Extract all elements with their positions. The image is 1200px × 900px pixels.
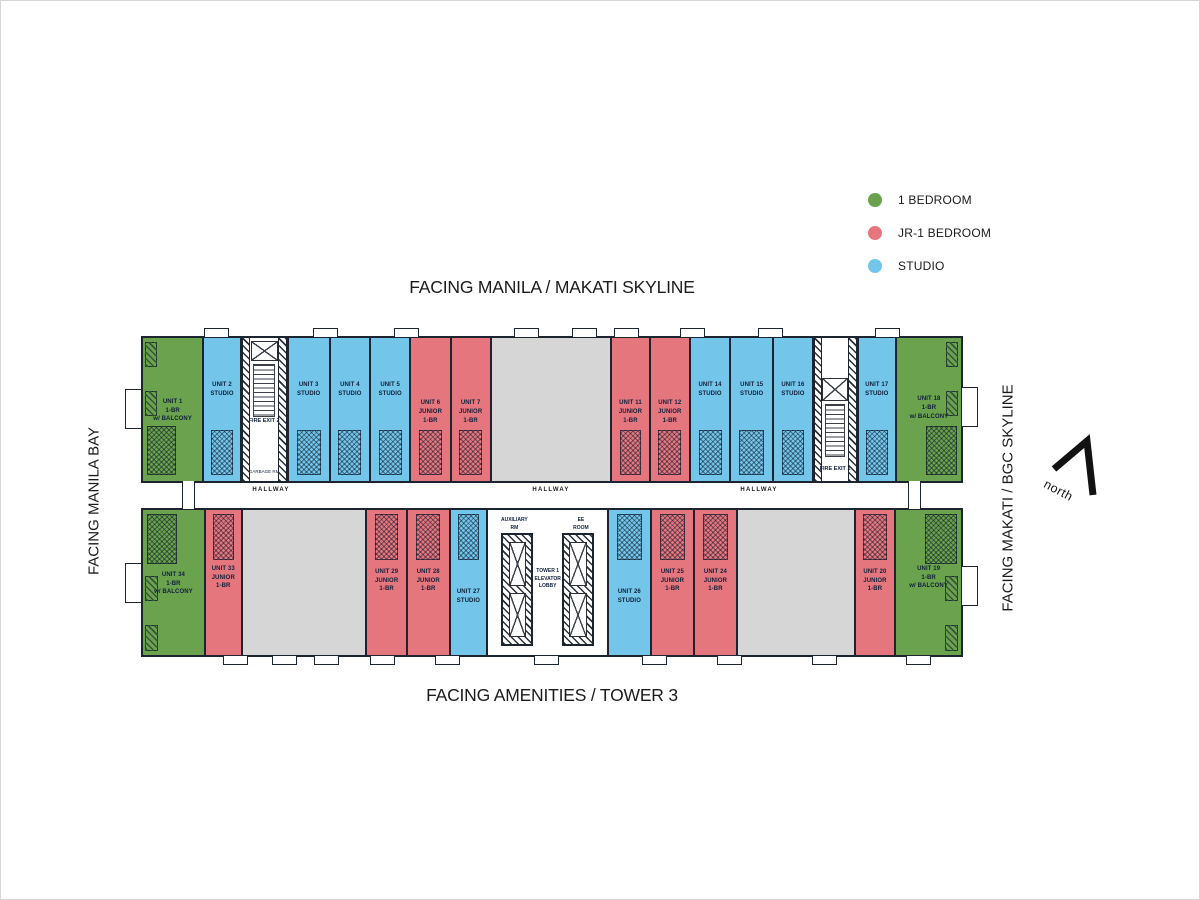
- stair-shaft-wall: [278, 338, 287, 481]
- parapet-ledge: [614, 328, 639, 337]
- fire-exit-2-label: FIRE EXIT 2: [242, 418, 287, 424]
- unit-11-label: UNIT 11JUNIOR1-BR: [612, 399, 648, 425]
- garbage-room-label: GARBAGE RM: [242, 469, 287, 474]
- parapet-ledge: [204, 328, 229, 337]
- parapet-ledge: [223, 656, 248, 665]
- unit-16: UNIT 16STUDIO: [772, 338, 811, 481]
- ee-room-label: EEROOM: [556, 517, 606, 532]
- legend-item-jr-1-bedroom: JR-1 BEDROOM: [868, 226, 991, 240]
- hallway-label-left: HALLWAY: [252, 487, 289, 493]
- unit-28-label: UNIT 28JUNIOR1-BR: [408, 568, 449, 594]
- fire-exit-2: FIRE EXIT 2GARBAGE RM: [240, 338, 287, 481]
- legend-item-1-bedroom: 1 BEDROOM: [868, 193, 991, 207]
- top-wing: UNIT 11-BRw/ BALCONYUNIT 2STUDIOFIRE EXI…: [141, 336, 963, 483]
- studio-color-dot: [868, 259, 882, 273]
- bathroom-hatch: [620, 430, 642, 475]
- legend-label-studio: STUDIO: [898, 259, 945, 273]
- stairs: [825, 404, 846, 457]
- unit-19: UNIT 191-BRw/ BALCONY: [894, 510, 961, 655]
- bathroom-hatch: [297, 430, 321, 475]
- bathroom-hatch: [617, 514, 641, 560]
- parapet-ledge: [514, 328, 539, 337]
- parapet-ledge: [680, 328, 705, 337]
- bathroom-hatch: [213, 514, 234, 560]
- unit-25: UNIT 25JUNIOR1-BR: [650, 510, 694, 655]
- unit-26-label: UNIT 26STUDIO: [609, 588, 650, 605]
- bathroom-hatch: [782, 430, 804, 475]
- parapet-ledge: [875, 328, 900, 337]
- bathroom-hatch: [863, 514, 886, 560]
- unit-27: UNIT 27STUDIO: [449, 510, 487, 655]
- parapet-ledge: [717, 656, 742, 665]
- elevator-car: [509, 542, 526, 586]
- unit-27-label: UNIT 27STUDIO: [451, 588, 487, 605]
- bathroom-hatch: [458, 514, 479, 560]
- crossed-landing-box: [251, 341, 278, 362]
- stairs: [253, 364, 275, 417]
- unit-25-label: UNIT 25JUNIOR1-BR: [652, 568, 694, 594]
- bathroom-hatch: [147, 426, 176, 475]
- unit-24: UNIT 24JUNIOR1-BR: [693, 510, 736, 655]
- unit-1: UNIT 11-BRw/ BALCONY: [143, 338, 202, 481]
- legend-label-1-bedroom: 1 BEDROOM: [898, 193, 972, 207]
- bathroom-hatch: [338, 430, 361, 475]
- gray-block-bottom-right: [736, 510, 854, 655]
- jr-1-bedroom-color-dot: [868, 226, 882, 240]
- elevator-car: [569, 593, 586, 637]
- parapet-ledge: [758, 328, 783, 337]
- facing-west-label: FACING MANILA BAY: [86, 427, 103, 575]
- unit-17: UNIT 17STUDIO: [857, 338, 895, 481]
- stair-shaft-wall: [848, 338, 856, 481]
- fire-exit-1: FIRE EXIT 1: [812, 338, 857, 481]
- parapet-ledge: [534, 656, 559, 665]
- unit-16-label: UNIT 16STUDIO: [774, 381, 811, 398]
- parapet-ledge: [313, 328, 338, 337]
- unit-20-label: UNIT 20JUNIOR1-BR: [856, 568, 895, 594]
- unit-7: UNIT 7JUNIOR1-BR: [450, 338, 490, 481]
- elevator-car: [569, 542, 586, 586]
- unit-3-label: UNIT 3STUDIO: [289, 381, 329, 398]
- fire-exit-1-label: FIRE EXIT 1: [814, 466, 857, 472]
- parapet-ledge: [314, 656, 339, 665]
- hatch-square: [945, 625, 958, 650]
- balcony-protrusion: [961, 566, 978, 606]
- bathroom-hatch: [660, 514, 685, 560]
- bathroom-hatch: [699, 430, 722, 475]
- parapet-ledge: [370, 656, 395, 665]
- hatch-square: [145, 342, 157, 367]
- parapet-ledge: [906, 656, 931, 665]
- bottom-wing: UNIT 341-BRw/ BALCONYUNIT 33JUNIOR1-BRUN…: [141, 508, 963, 657]
- unit-29-label: UNIT 29JUNIOR1-BR: [367, 568, 406, 594]
- balcony-protrusion: [125, 563, 142, 603]
- unit-18: UNIT 181-BRw/ BALCONY: [895, 338, 961, 481]
- unit-34-label: UNIT 341-BRw/ BALCONY: [143, 571, 204, 597]
- elevator-car: [509, 593, 526, 637]
- bathroom-hatch: [416, 514, 440, 560]
- unit-5-label: UNIT 5STUDIO: [371, 381, 409, 398]
- legend-item-studio: STUDIO: [868, 259, 991, 273]
- unit-2-label: UNIT 2STUDIO: [204, 381, 239, 398]
- unit-20: UNIT 20JUNIOR1-BR: [854, 510, 895, 655]
- unit-12: UNIT 12JUNIOR1-BR: [649, 338, 689, 481]
- hallway-label-center: HALLWAY: [532, 487, 569, 493]
- unit-11: UNIT 11JUNIOR1-BR: [610, 338, 648, 481]
- legend: 1 BEDROOM JR-1 BEDROOM STUDIO: [868, 193, 991, 273]
- gray-block-top: [490, 338, 611, 481]
- bathroom-hatch: [739, 430, 764, 475]
- facing-north-label: FACING MANILA / MAKATI SKYLINE: [141, 277, 963, 298]
- bathroom-hatch: [925, 514, 957, 564]
- unit-33-label: UNIT 33JUNIOR1-BR: [206, 565, 241, 591]
- unit-5: UNIT 5STUDIO: [369, 338, 409, 481]
- unit-6-label: UNIT 6JUNIOR1-BR: [411, 399, 449, 425]
- bathroom-hatch: [147, 514, 177, 564]
- bathroom-hatch: [379, 430, 402, 475]
- unit-24-label: UNIT 24JUNIOR1-BR: [695, 568, 736, 594]
- hallway-label-right: HALLWAY: [740, 487, 777, 493]
- auxiliary-room-label: AUXILIARYRM: [489, 517, 539, 532]
- bathroom-hatch: [658, 430, 681, 475]
- unit-4-label: UNIT 4STUDIO: [331, 381, 369, 398]
- bathroom-hatch: [211, 430, 232, 475]
- tower-1-core: AUXILIARYRMEEROOMTOWER 1ELEVATORLOBBY: [486, 510, 607, 655]
- parapet-ledge: [272, 656, 297, 665]
- unit-34: UNIT 341-BRw/ BALCONY: [143, 510, 204, 655]
- bathroom-hatch: [419, 430, 442, 475]
- corridor-end-wall: [182, 481, 195, 509]
- unit-3: UNIT 3STUDIO: [287, 338, 329, 481]
- parapet-ledge: [642, 656, 667, 665]
- unit-26: UNIT 26STUDIO: [607, 510, 650, 655]
- stair-shaft-wall: [242, 338, 251, 481]
- gray-block-bottom-left: [241, 510, 366, 655]
- bathroom-hatch: [866, 430, 888, 475]
- parapet-ledge: [572, 328, 597, 337]
- unit-12-label: UNIT 12JUNIOR1-BR: [651, 399, 689, 425]
- parapet-ledge: [394, 328, 419, 337]
- unit-2: UNIT 2STUDIO: [202, 338, 239, 481]
- hatch-square: [145, 625, 157, 650]
- unit-14-label: UNIT 14STUDIO: [691, 381, 729, 398]
- facing-east-label: FACING MAKATI / BGC SKYLINE: [1000, 384, 1017, 611]
- unit-28: UNIT 28JUNIOR1-BR: [406, 510, 449, 655]
- balcony-protrusion: [125, 389, 142, 429]
- parapet-ledge: [812, 656, 837, 665]
- unit-1-label: UNIT 11-BRw/ BALCONY: [143, 398, 202, 424]
- unit-15-label: UNIT 15STUDIO: [731, 381, 772, 398]
- unit-15: UNIT 15STUDIO: [729, 338, 772, 481]
- north-indicator: north: [1044, 433, 1116, 521]
- legend-label-jr-1-bedroom: JR-1 BEDROOM: [898, 226, 991, 240]
- facing-south-label: FACING AMENITIES / TOWER 3: [141, 685, 963, 706]
- hatch-square: [946, 342, 959, 367]
- balcony-protrusion: [961, 387, 978, 427]
- bathroom-hatch: [459, 430, 482, 475]
- unit-33: UNIT 33JUNIOR1-BR: [204, 510, 241, 655]
- unit-29: UNIT 29JUNIOR1-BR: [365, 510, 406, 655]
- bathroom-hatch: [926, 426, 957, 475]
- bathroom-hatch: [375, 514, 398, 560]
- unit-14: UNIT 14STUDIO: [689, 338, 729, 481]
- unit-7-label: UNIT 7JUNIOR1-BR: [452, 399, 490, 425]
- unit-19-label: UNIT 191-BRw/ BALCONY: [896, 565, 961, 591]
- crossed-landing-box: [822, 378, 848, 401]
- 1-bedroom-color-dot: [868, 193, 882, 207]
- unit-17-label: UNIT 17STUDIO: [859, 381, 895, 398]
- bathroom-hatch: [703, 514, 727, 560]
- elevator-lobby-label: TOWER 1ELEVATORLOBBY: [529, 568, 567, 591]
- corridor-end-wall: [908, 481, 921, 509]
- parapet-ledge: [435, 656, 460, 665]
- unit-6: UNIT 6JUNIOR1-BR: [409, 338, 449, 481]
- floor-plan-canvas: 1 BEDROOM JR-1 BEDROOM STUDIO FACING MAN…: [0, 0, 1200, 900]
- unit-18-label: UNIT 181-BRw/ BALCONY: [897, 395, 961, 421]
- unit-4: UNIT 4STUDIO: [329, 338, 369, 481]
- stair-shaft-wall: [814, 338, 822, 481]
- elevator-shaft: [562, 533, 594, 646]
